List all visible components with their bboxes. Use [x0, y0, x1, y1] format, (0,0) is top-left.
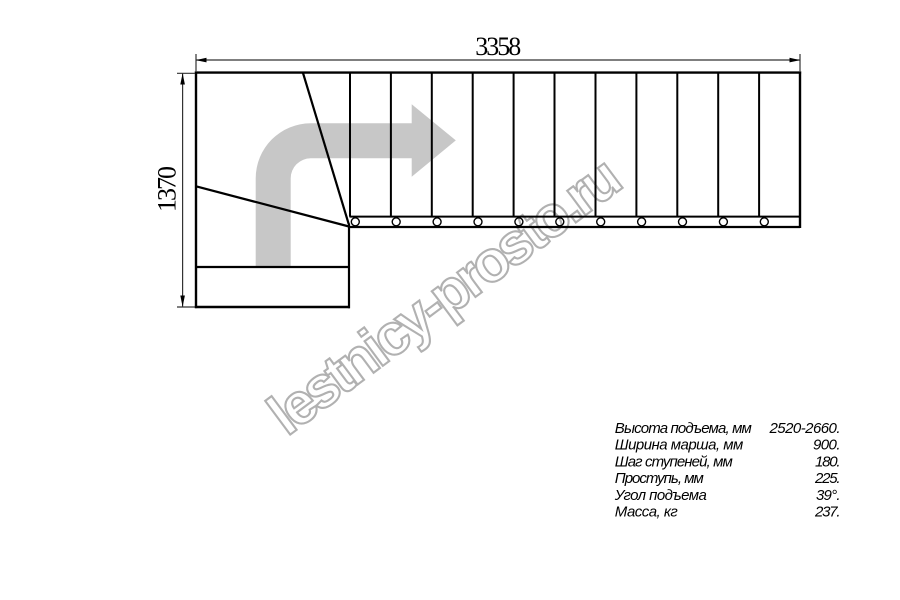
svg-text:225.: 225. — [814, 470, 841, 487]
svg-text:900.: 900. — [813, 437, 841, 454]
svg-text:lestnicy-prosto.ru: lestnicy-prosto.ru — [256, 146, 631, 448]
svg-text:39°.: 39°. — [816, 487, 841, 504]
svg-text:1370: 1370 — [153, 166, 182, 212]
svg-text:3358: 3358 — [475, 32, 521, 61]
svg-text:2520-2660.: 2520-2660. — [769, 420, 841, 437]
svg-text:Масса, кг: Масса, кг — [615, 504, 679, 521]
svg-text:Проступь, мм: Проступь, мм — [615, 470, 704, 487]
svg-text:Шаг ступеней, мм: Шаг ступеней, мм — [615, 453, 733, 470]
svg-text:Ширина марша, мм: Ширина марша, мм — [615, 437, 744, 454]
svg-text:180.: 180. — [815, 453, 841, 470]
svg-text:237.: 237. — [814, 504, 841, 521]
svg-text:Угол подъема: Угол подъема — [614, 487, 707, 504]
svg-text:Высота подъема, мм: Высота подъема, мм — [615, 420, 752, 437]
